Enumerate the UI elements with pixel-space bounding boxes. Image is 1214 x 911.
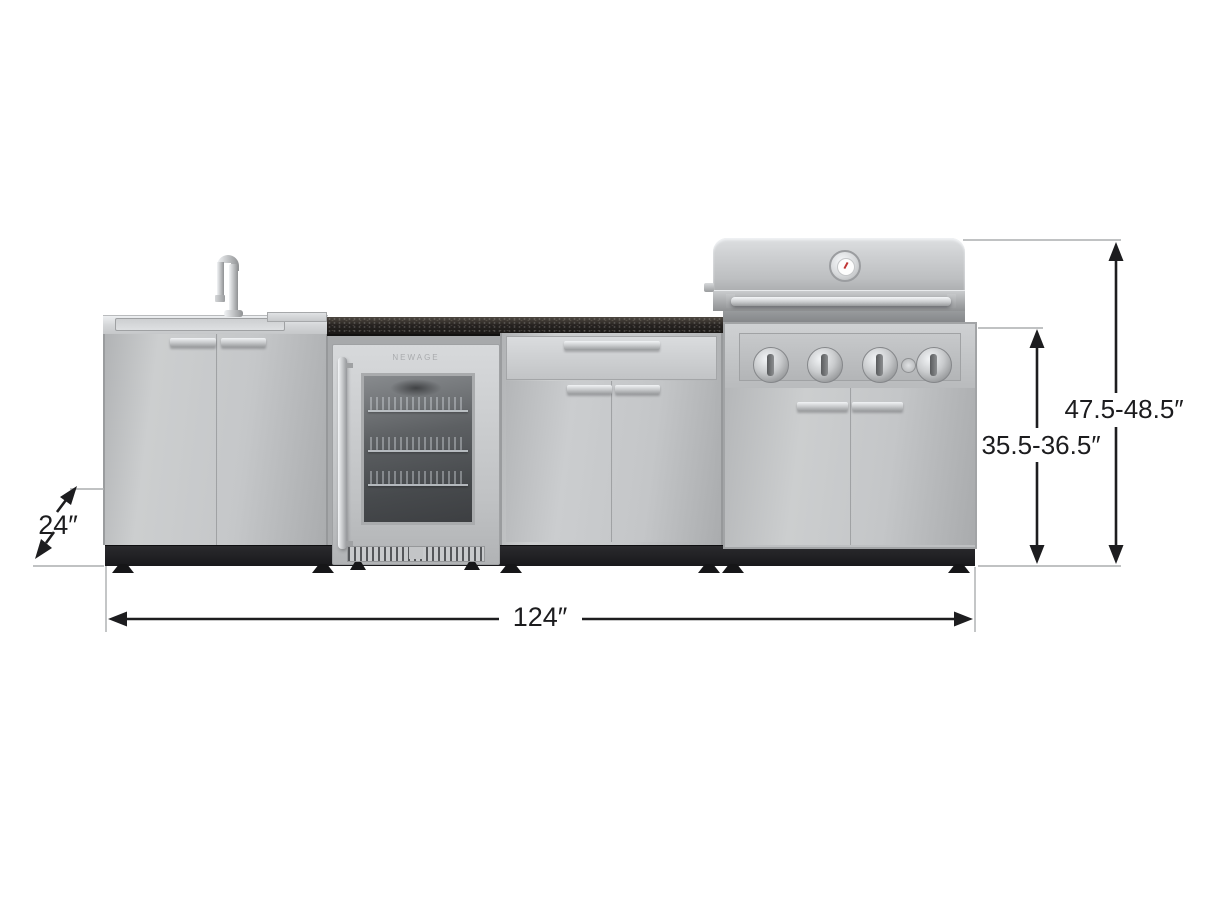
sink-cabinet (103, 334, 328, 545)
door-seam (611, 381, 613, 542)
door-seam (216, 334, 218, 545)
bottle-row (370, 437, 466, 450)
grill-control-panel (725, 324, 975, 390)
fridge-glass-door (361, 373, 475, 525)
faucet-spout (217, 262, 224, 297)
burner-knob-1 (753, 347, 789, 383)
hood-handle (731, 297, 951, 306)
dim-label-depth: 24″ (28, 510, 88, 541)
burner-knob-3 (862, 347, 898, 383)
fridge-shelf (368, 410, 468, 412)
fridge-shelf (368, 450, 468, 452)
grill-door-handle-right (852, 402, 903, 411)
bar-cabinet (500, 333, 723, 545)
dim-label-width: 124″ (498, 602, 582, 633)
fridge-handle (338, 357, 347, 549)
bar-door-handle-left (567, 385, 612, 394)
door-seam (850, 388, 852, 545)
ignition-button (901, 358, 916, 373)
grill-cart (723, 322, 977, 549)
faucet-base (224, 310, 243, 317)
bar-drawer (506, 336, 717, 380)
drawer-handle (564, 341, 660, 350)
bottle-row (370, 471, 466, 484)
sink-basin (115, 318, 285, 331)
burner-knob-2 (807, 347, 843, 383)
fridge-shelf (368, 484, 468, 486)
dim-label-counter-height: 35.5-36.5″ (974, 430, 1108, 461)
product-dimension-diagram: NEWAGE (0, 0, 1214, 911)
grill-doors (725, 388, 975, 545)
bar-door-handle-right (615, 385, 660, 394)
fridge-vent-grille (347, 546, 485, 562)
sink-door-handle-left (170, 338, 216, 347)
side-shelf (267, 312, 327, 322)
brand-logo: NEWAGE (333, 353, 499, 362)
sink-door-handle-right (221, 338, 266, 347)
hood-hinge (704, 283, 714, 292)
bar-doors (506, 381, 715, 542)
beverage-fridge: NEWAGE (332, 344, 500, 565)
thermometer-gauge (829, 250, 861, 282)
grill-door-handle-left (797, 402, 848, 411)
faucet-nozzle (215, 295, 225, 302)
burner-knob-4 (916, 347, 952, 383)
bottle-row (370, 397, 466, 410)
dim-label-overall-height: 47.5-48.5″ (1057, 394, 1191, 425)
